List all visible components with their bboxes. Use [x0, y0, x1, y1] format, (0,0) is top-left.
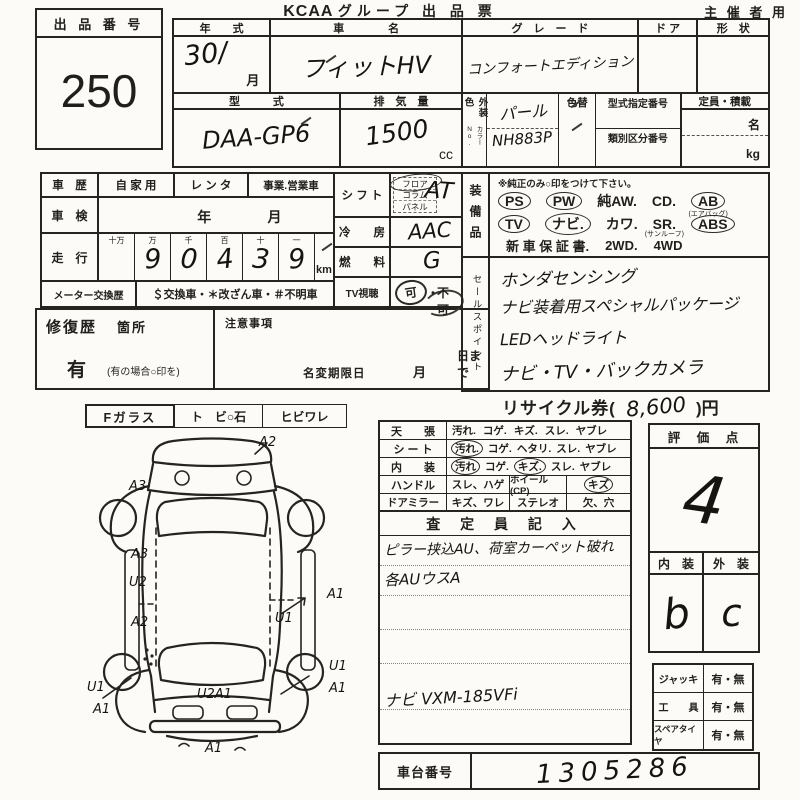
rating-score-area: 4: [650, 449, 758, 551]
shift-label: シ フ ト: [335, 174, 391, 216]
shape-label: 形 状: [698, 20, 768, 37]
equipment-item-text: AB: [698, 193, 718, 209]
spare-tire-label: スペアタイヤ: [654, 721, 704, 749]
year-month-suffix: 月: [246, 70, 259, 89]
tools-value: 有・無: [704, 693, 752, 720]
damage-label: U1: [87, 680, 105, 695]
equipment-item: SR.(サンルーフ): [653, 216, 676, 232]
capacity-label: 定員・積載: [682, 94, 768, 110]
mileage-label: 走 行: [42, 234, 99, 280]
equipment-item-sub: (エアバッグ): [688, 209, 727, 219]
car-cowl-bottom: [148, 490, 276, 495]
exterior-color-values: パール NH883P: [487, 94, 558, 166]
meter-options: ＄交換車・＊改ざん車・＃不明車: [137, 282, 333, 306]
damage-label: U1: [275, 611, 293, 626]
rating-interior-area: b: [650, 575, 704, 651]
rating-exterior-value: c: [719, 590, 742, 635]
door-label: ド ア: [639, 20, 697, 37]
rating-box: 評 価 点 4 内 装 外 装 b c: [648, 423, 760, 653]
rating-interior-value: b: [660, 587, 692, 639]
year-cell: 年 式 30/ 月: [174, 20, 271, 92]
equipment-item-circled: TV: [498, 215, 530, 233]
condition-row-headliner: 天 張 汚れ. コゲ. キズ. スレ. ヤブレ: [380, 422, 630, 440]
repair-spots-label: 箇所: [117, 317, 147, 336]
capacity-cell: 定員・積載 名 kg: [682, 94, 768, 166]
lot-number-value: 250: [37, 38, 161, 144]
car-windshield: [157, 498, 267, 536]
fuel-value-area: G: [391, 248, 461, 276]
meter-label: メーター交換歴: [42, 282, 137, 306]
ac-label: 冷 房: [335, 218, 391, 246]
mirror-value: キズ、ワレ: [447, 494, 510, 510]
mileage-digit: 9: [287, 243, 307, 275]
handle-label: ハンドル: [380, 476, 447, 493]
chassis-number-value-area: 1305286: [472, 754, 758, 788]
mileage-col-100k: 十万: [99, 234, 135, 280]
displacement-value-area: 1500 cc: [341, 110, 461, 164]
usage-label: 車 歴: [42, 174, 99, 196]
repair-box: 修復歴 箇所 有 (有の場合○印を): [35, 308, 215, 390]
recycle-suffix: )円: [696, 394, 719, 419]
car-rear-bumper: [150, 721, 280, 732]
year-value: 30/: [182, 37, 228, 72]
assessor-nav-line: ナビ VXM-185VFi: [383, 681, 518, 712]
model-label: 型 式: [174, 94, 339, 110]
shift-value: AT: [424, 177, 454, 205]
front-glass-row: Fガラス ト ビ○石 ヒビワレ: [85, 404, 347, 428]
mileage-col-10: 十 3: [243, 234, 279, 280]
tools-row: 工 具 有・無: [654, 693, 752, 721]
assessor-empty-line: [380, 596, 630, 630]
condition-row-interior: 内 装 汚れ コゲ. キズ. スレ. ヤブレ: [380, 458, 630, 476]
car-headlight-right: [237, 471, 251, 485]
assessor-nav-line-slot: ナビ VXM-185VFi: [380, 664, 630, 710]
recycle-label: リサイクル券(: [502, 394, 616, 419]
rename-deadline-label: 名変期限日: [303, 365, 366, 381]
ac-value: AAC: [407, 218, 452, 245]
equipment-item: 4WD: [654, 238, 683, 253]
type-designation-area: 型式指定番号: [596, 94, 679, 129]
recolor-cell: 色替: [559, 94, 596, 166]
shift-row: シ フ ト フロア コラム パネル AT: [335, 174, 461, 218]
equipment-item-circled: PS: [498, 192, 531, 210]
class-number-area: 類別区分番号: [596, 129, 679, 148]
fuel-row: 燃 料 G: [335, 248, 461, 278]
chassis-number-box: 車台番号 1305286: [378, 752, 760, 790]
damage-label: A3: [128, 479, 146, 494]
shaken-month-unit: 月: [267, 207, 281, 227]
chassis-number-value: 1305286: [535, 752, 694, 790]
assessor-header: 査 定 員 記 入: [380, 512, 630, 536]
year-value-area: 30/ 月: [174, 37, 269, 92]
recycle-amount: 8,600: [625, 392, 687, 421]
condition-option: キズ.: [514, 423, 538, 438]
seat-options: 汚れ. コゲ. ヘタリ. スレ. ヤブレ: [447, 440, 630, 457]
car-rear-window: [159, 643, 265, 685]
model-value: DAA-GP6: [201, 119, 311, 154]
rating-exterior-label: 外 装: [704, 553, 758, 573]
vehicle-row1: 年 式 30/ 月 車 名 フィットHV グ レ ー ド コンフォートエディショ…: [174, 20, 768, 94]
stray-mark: [572, 123, 583, 132]
equipment-item: 純AW.: [597, 191, 637, 211]
shape-cell: 形 状: [698, 20, 768, 92]
sheet-title-text: グループ 出 品 票: [338, 3, 497, 19]
car-taillight-left: [173, 706, 203, 719]
type-designation-label: 型式指定番号: [596, 94, 679, 110]
equipment-line1: PS PW 純AW. CD. AB(エアバッグ): [498, 190, 760, 212]
sales-points-content: ホンダセンシング ナビ装着用スペシャルパッケージ LEDヘッドライト ナビ・TV…: [490, 258, 768, 390]
color-no-area: NH883P: [487, 129, 558, 148]
mileage-row: 走 行 十万 万 9 千 0 百 4 十: [42, 234, 333, 282]
shaken-year-unit: 年: [197, 207, 211, 227]
capacity-weight-area: kg: [682, 136, 768, 164]
glass-crack-option: ヒビワレ: [263, 404, 347, 428]
damage-label: U2A1: [197, 687, 232, 702]
class-number-label: 類別区分番号: [596, 129, 679, 145]
car-taillight-right: [227, 706, 257, 719]
condition-option: コゲ.: [483, 423, 507, 438]
tv-ok-option: 可: [393, 278, 428, 307]
repair-has-label: 有: [67, 355, 86, 382]
exterior-color-label: 外装色: [461, 97, 489, 126]
wheel-label: ホイール(CP): [510, 476, 567, 493]
shaken-value-area: 年 月: [99, 198, 333, 232]
condition-row-mirror-stereo: ドアミラー キズ、ワレ ステレオ 欠、穴: [380, 494, 630, 512]
vehicle-table: 年 式 30/ 月 車 名 フィットHV グ レ ー ド コンフォートエディショ…: [172, 18, 770, 168]
equipment-item: 2WD.: [605, 238, 638, 253]
displacement-unit: cc: [439, 146, 453, 162]
tv-value-area: 可 ・ 不 可: [391, 278, 461, 306]
mileage-col-1: 一 9: [279, 234, 315, 280]
color-no-value: NH883P: [492, 127, 553, 149]
history-table: 車 歴 自 家 用 レ ン タ 事業.営業車 車 検 年 月 走 行 十万 万 …: [40, 172, 335, 308]
car-rear-side-right: [269, 676, 273, 712]
car-name-value-area: フィットHV: [271, 37, 461, 92]
stereo-label: ステレオ: [510, 494, 567, 510]
displacement-value: 1500: [363, 114, 430, 152]
condition-row-seat: シ ー ト 汚れ. コゲ. ヘタリ. スレ. ヤブレ: [380, 440, 630, 458]
model-value-area: DAA-GP6: [174, 110, 339, 164]
tv-row: TV視聴 可 ・ 不 可: [335, 278, 461, 306]
chassis-number-label: 車台番号: [380, 754, 472, 788]
capacity-persons-unit: 名: [748, 116, 760, 133]
fuel-value: G: [422, 247, 442, 274]
car-rear-side-left: [151, 676, 155, 712]
color-value: パール: [498, 97, 548, 125]
door-cell: ド ア: [639, 20, 699, 92]
mileage-digit: 0: [179, 244, 198, 276]
condition-option: ヤブレ: [576, 423, 608, 438]
damage-label: A2: [130, 615, 148, 630]
color-no-label: カラーNo.: [466, 126, 483, 163]
auction-sheet: KCAA グループ 出 品 票 主 催 者 用 出 品 番 号 250 年 式 …: [0, 0, 800, 800]
assessor-note-line1-slot: ピラー挟込AU、荷室カーペット破れ: [380, 536, 630, 566]
rating-score: 4: [678, 459, 730, 541]
grade-label: グ レ ー ド: [463, 20, 637, 37]
front-glass-label: Fガラス: [85, 404, 175, 428]
condition-option: ヘタリ.: [517, 441, 551, 456]
tv-ng-option: 不 可: [437, 284, 461, 318]
capacity-persons-area: 名: [682, 110, 768, 136]
car-headlight-left: [175, 471, 189, 485]
car-rocker-right: [301, 550, 315, 670]
headliner-label: 天 張: [380, 422, 447, 439]
condition-table: 天 張 汚れ. コゲ. キズ. スレ. ヤブレ シ ー ト 汚れ. コゲ. ヘタ…: [378, 420, 632, 745]
shift-value-area: フロア コラム パネル AT: [391, 174, 461, 216]
condition-option: ヤブレ: [580, 459, 612, 474]
exterior-color-label-strip: 外装色 カラーNo.: [463, 94, 487, 166]
rating-interior-label: 内 装: [650, 553, 704, 573]
vehicle-row2: 型 式 DAA-GP6 排 気 量 1500 cc 外装色 カラーNo.: [174, 94, 768, 166]
mileage-digit: 3: [251, 243, 270, 275]
usage-private: 自 家 用: [99, 174, 175, 196]
condition-row-handle-wheel: ハンドル スレ、ハゲ ホイール(CP) キズ: [380, 476, 630, 494]
damage-label: A2: [258, 435, 276, 450]
car-name-label: 車 名: [271, 20, 461, 37]
car-body-side-right: [273, 492, 282, 676]
equipment-line3: 新 車 保 証 書. 2WD. 4WD: [498, 235, 760, 255]
assessor-note-line1: ピラー挟込AU、荷室カーペット破れ: [384, 536, 614, 560]
mileage-unit: km: [316, 264, 332, 276]
equipment-item-circled: AB(エアバッグ): [691, 192, 725, 210]
rating-header: 評 価 点: [650, 425, 758, 449]
lot-number-label: 出 品 番 号: [37, 10, 161, 38]
model-cell: 型 式 DAA-GP6: [174, 94, 341, 166]
equipment-item-sub: (サンルーフ): [645, 229, 684, 239]
damage-label: A1: [326, 587, 344, 602]
damage-label: A1: [92, 702, 110, 717]
sales-points-label-strip: セールスポイント: [463, 258, 490, 390]
specs-table: シ フ ト フロア コラム パネル AT 冷 房 AAC 燃 料 G: [333, 172, 463, 308]
condition-option-circled: 汚れ.: [451, 440, 483, 457]
spare-tire-row: スペアタイヤ 有・無: [654, 721, 752, 749]
notes-label: 注意事項: [225, 315, 273, 331]
recycle-ticket: リサイクル券( 8,600 )円: [502, 394, 792, 422]
stray-mark: [322, 243, 333, 252]
car-fender-rear-left: [116, 670, 149, 732]
accessories-box: ジャッキ 有・無 工 具 有・無 スペアタイヤ 有・無: [652, 663, 754, 751]
jack-value: 有・無: [704, 665, 752, 692]
equipment-label: 装備品: [467, 184, 484, 247]
repair-hint: (有の場合○印を): [107, 363, 180, 378]
wheel-value-circled: キズ: [584, 476, 613, 493]
damage-label: U1: [329, 659, 347, 674]
mileage-digit: 4: [214, 243, 234, 276]
mileage-digit-grid: 十万 万 9 千 0 百 4 十 3: [99, 234, 315, 280]
condition-option: コゲ.: [488, 441, 512, 456]
exterior-color-cell: 外装色 カラーNo. パール NH883P: [463, 94, 559, 166]
mileage-col-10k: 万 9: [135, 234, 171, 280]
condition-option: 汚れ.: [452, 423, 476, 438]
lot-number-box: 出 品 番 号 250: [35, 8, 163, 150]
displacement-cell: 排 気 量 1500 cc: [341, 94, 463, 166]
annotation-line-rear-right-wheel: [281, 676, 309, 694]
grade-cell: グ レ ー ド コンフォートエディション: [463, 20, 639, 92]
car-name-cell: 車 名 フィットHV: [271, 20, 463, 92]
seat-label: シ ー ト: [380, 440, 447, 457]
assessor-empty-line: [380, 630, 630, 664]
equipment-item-circled: ナビ.: [545, 213, 591, 235]
displacement-label: 排 気 量: [341, 94, 461, 110]
equipment-item-circled: PW: [546, 192, 583, 210]
sales-points-label: セールスポイント: [469, 274, 483, 374]
damage-label: A1: [328, 681, 346, 696]
shaken-label: 車 検: [42, 198, 99, 232]
usage-row: 車 歴 自 家 用 レ ン タ 事業.営業車: [42, 174, 333, 198]
capacity-weight-unit: kg: [746, 147, 760, 161]
car-front-bumper: [153, 439, 271, 467]
sales-points-box: セールスポイント ホンダセンシング ナビ装着用スペシャルパッケージ LEDヘッド…: [461, 256, 770, 392]
notes-box: 注意事項 名変期限日 月 日まで: [213, 308, 490, 390]
type-number-cell: 型式指定番号 類別区分番号: [596, 94, 681, 166]
damage-label: A1: [204, 741, 222, 756]
interior-label: 内 装: [380, 458, 447, 475]
sales-point-line: ナビ装着用スペシャルパッケージ: [500, 290, 759, 326]
rating-sub-values: b c: [650, 575, 758, 651]
condition-option: スレ.: [556, 441, 580, 456]
rating-sub-headers: 内 装 外 装: [650, 551, 758, 575]
headliner-options: 汚れ. コゲ. キズ. スレ. ヤブレ: [447, 422, 630, 439]
mileage-header: 十万: [109, 235, 125, 246]
assessor-notes-area: ピラー挟込AU、荷室カーペット破れ 各AUウスA ナビ VXM-185VFi: [380, 536, 630, 743]
jack-label: ジャッキ: [654, 665, 704, 692]
stereo-value: 欠、穴: [567, 494, 630, 510]
tools-label: 工 具: [654, 693, 704, 720]
equipment-item: カワ.: [606, 214, 638, 234]
grade-value: コンフォートエディション: [466, 50, 633, 79]
glass-stone-chip-option: ト ビ○石: [175, 404, 263, 428]
ac-row: 冷 房 AAC: [335, 218, 461, 248]
wheel-value-area: キズ: [567, 476, 630, 493]
tv-label: TV視聴: [335, 278, 391, 306]
annotation-tilde-right: [235, 748, 245, 751]
assessor-note-line2-slot: 各AUウスA: [380, 566, 630, 596]
condition-option: コゲ.: [485, 459, 509, 474]
rating-exterior-area: c: [704, 575, 758, 651]
equipment-item: 新 車 保 証 書.: [506, 236, 589, 255]
repair-label: 修復歴: [46, 316, 97, 337]
usage-commercial: 事業.営業車: [249, 174, 333, 196]
fuel-label: 燃 料: [335, 248, 391, 276]
equipment-item: CD.: [652, 193, 676, 209]
ac-value-area: AAC: [391, 218, 461, 246]
year-label: 年 式: [174, 20, 269, 37]
handle-value: スレ、ハゲ: [447, 476, 510, 493]
mirror-label: ドアミラー: [380, 494, 447, 510]
usage-rental: レ ン タ: [175, 174, 249, 196]
mileage-digit: 9: [143, 243, 162, 275]
car-name-value: フィットHV: [301, 45, 432, 85]
equipment-box: 装備品 ※純正のみ○印をつけて下さい。 PS PW 純AW. CD. AB(エア…: [461, 172, 770, 258]
damage-label: U2: [129, 575, 147, 590]
shaken-row: 車 検 年 月: [42, 198, 333, 234]
car-rocker-left: [125, 550, 139, 670]
rename-month-unit: 月: [413, 362, 426, 381]
condition-option-circled: 汚れ: [451, 458, 480, 475]
damage-label: A3: [130, 547, 148, 562]
grade-value-area: コンフォートエディション: [463, 37, 637, 92]
car-wheel-rear-right: [287, 654, 323, 690]
car-damage-diagram: A2 A3 A3 U2 A2 U1 A1 U1 A1 U1 A1 U2A1 A1: [55, 428, 385, 788]
jack-row: ジャッキ 有・無: [654, 665, 752, 693]
equipment-label-strip: 装備品: [463, 174, 490, 256]
mileage-unit-area: km: [315, 234, 333, 280]
equipment-content: ※純正のみ○印をつけて下さい。 PS PW 純AW. CD. AB(エアバッグ)…: [490, 174, 768, 256]
assessor-note-line2: 各AUウスA: [384, 567, 461, 591]
color-value-area: パール: [487, 94, 558, 129]
annotation-tilde-left: [179, 744, 189, 747]
condition-option: スレ.: [545, 423, 569, 438]
spare-tire-value: 有・無: [704, 721, 752, 749]
condition-option: ヤブレ: [585, 441, 617, 456]
meter-row: メーター交換歴 ＄交換車・＊改ざん車・＃不明車: [42, 282, 333, 306]
equipment-note: ※純正のみ○印をつけて下さい。: [498, 176, 760, 190]
mileage-col-100: 百 4: [207, 234, 243, 280]
mileage-col-1k: 千 0: [171, 234, 207, 280]
